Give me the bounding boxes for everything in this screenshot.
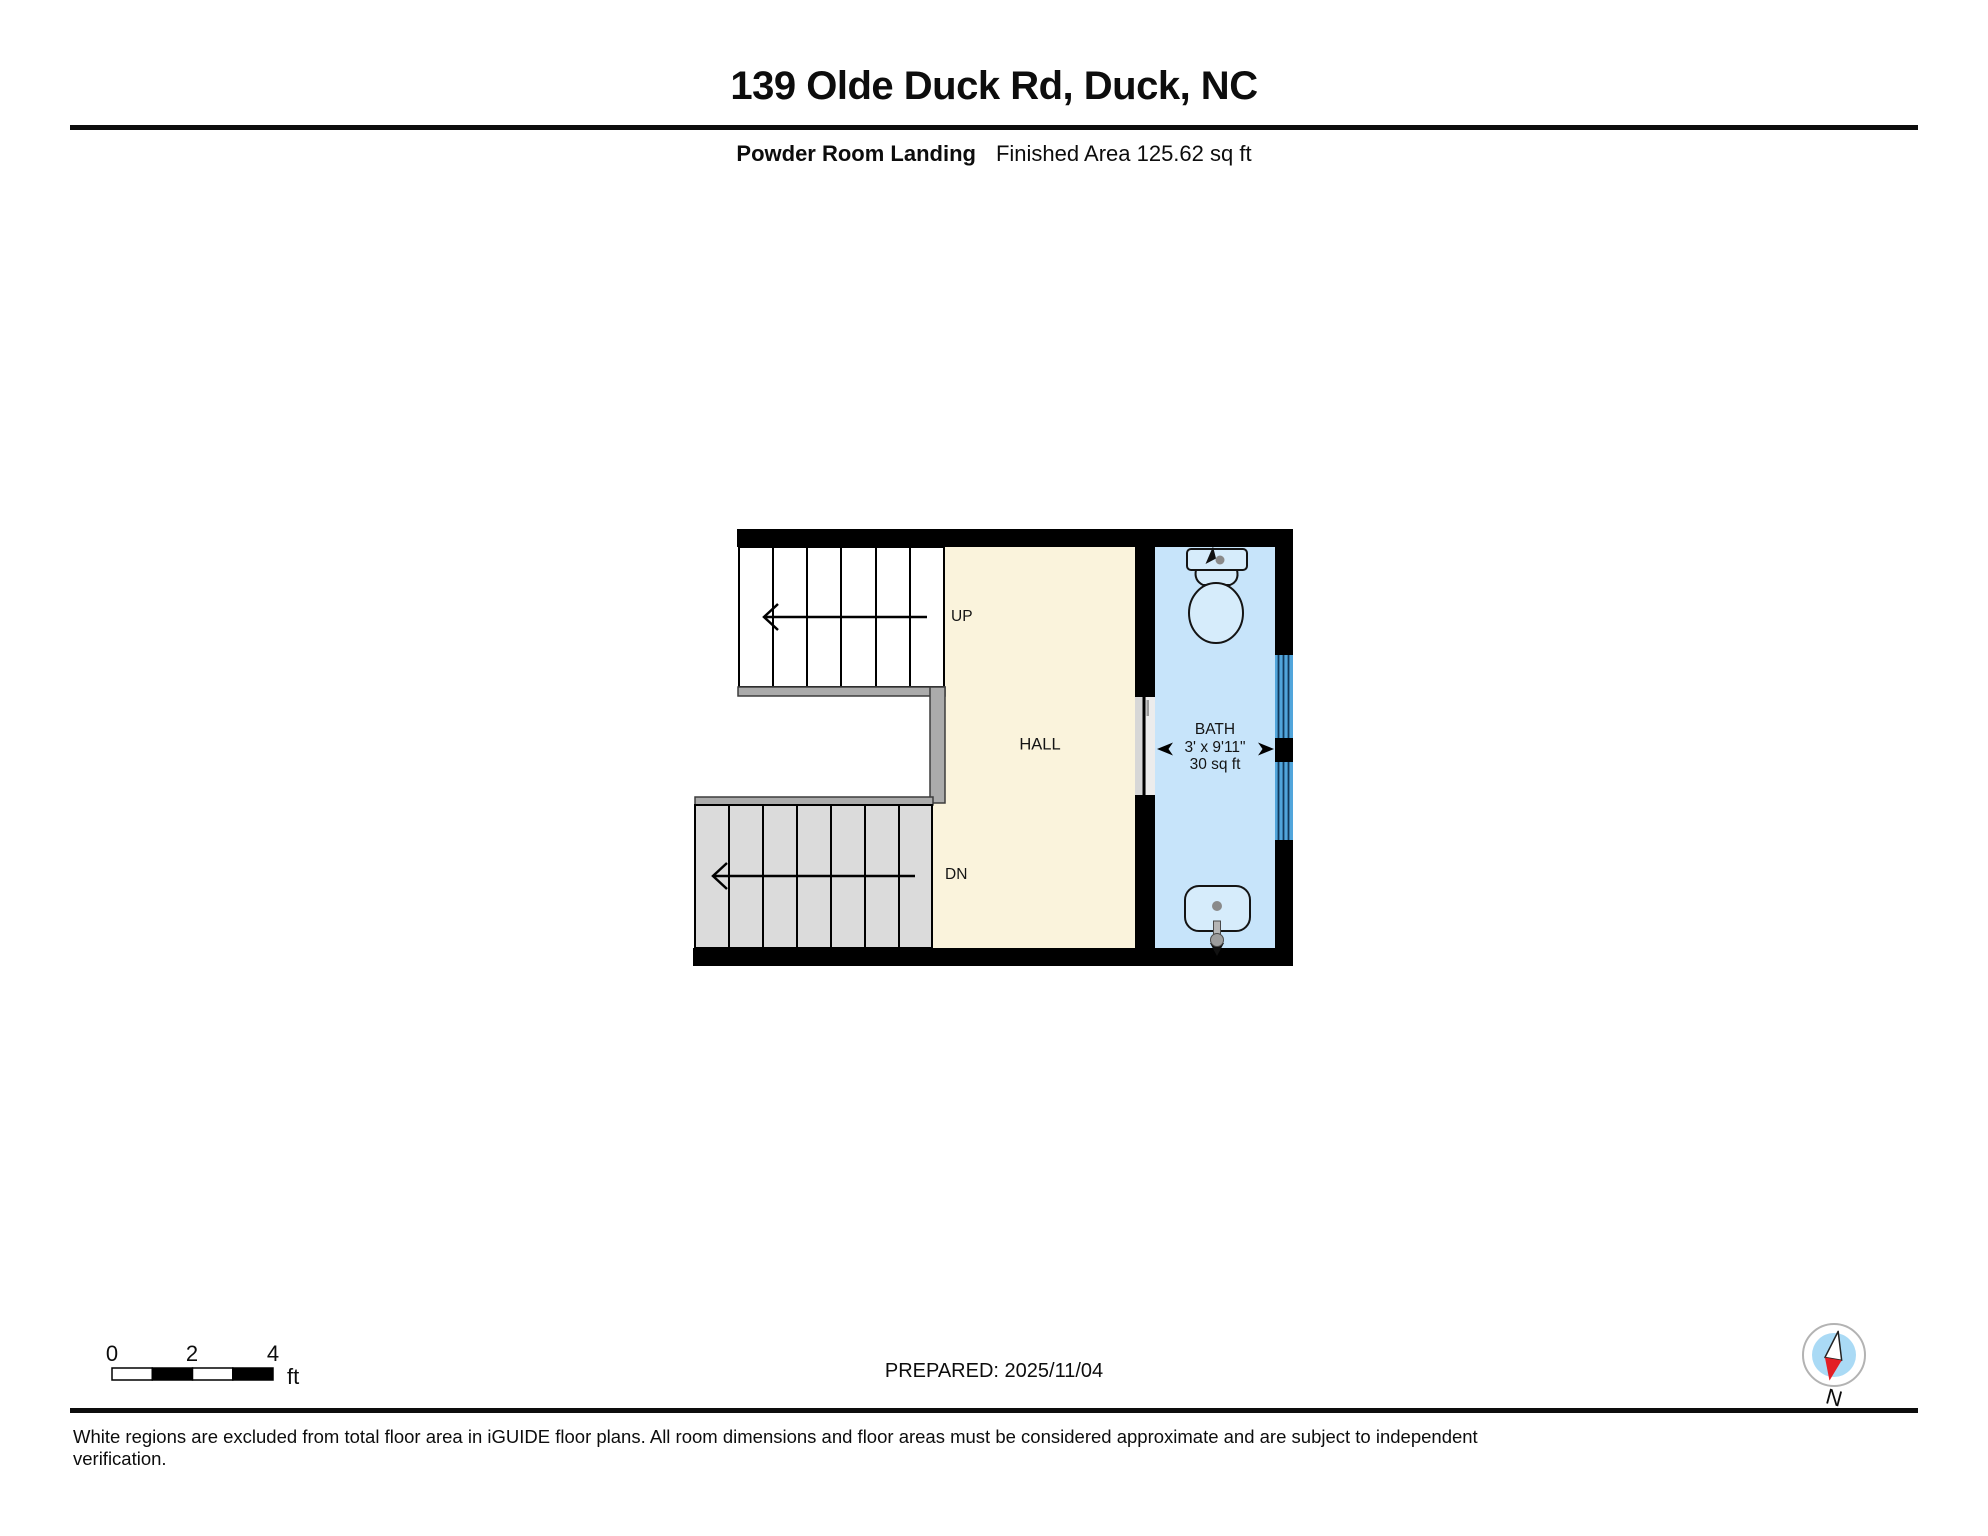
stairs-down	[695, 805, 932, 948]
stairs-up	[739, 547, 944, 687]
door-opening	[1135, 697, 1155, 795]
stairwell-railing	[695, 687, 945, 805]
bath-window-upper	[1275, 655, 1293, 738]
floorplan-page: 139 Olde Duck Rd, Duck, NC Powder Room L…	[0, 0, 1988, 1536]
bath-label-block: BATH 3' x 9'11" 30 sq ft	[1184, 721, 1245, 774]
bath-window-lower	[1275, 762, 1293, 840]
hall-label: HALL	[1019, 736, 1060, 755]
stairs-up-label: UP	[951, 608, 973, 626]
floorplan-drawing	[0, 0, 1988, 1536]
bath-area: 30 sq ft	[1184, 756, 1245, 774]
toilet-icon	[1187, 547, 1247, 644]
footer-divider	[70, 1408, 1918, 1413]
disclaimer-text: White regions are excluded from total fl…	[73, 1426, 1573, 1470]
stairs-down-label: DN	[945, 866, 967, 884]
prepared-date: PREPARED: 2025/11/04	[0, 1360, 1988, 1383]
bath-dimensions: 3' x 9'11"	[1184, 739, 1245, 757]
bath-label: BATH	[1184, 721, 1245, 739]
